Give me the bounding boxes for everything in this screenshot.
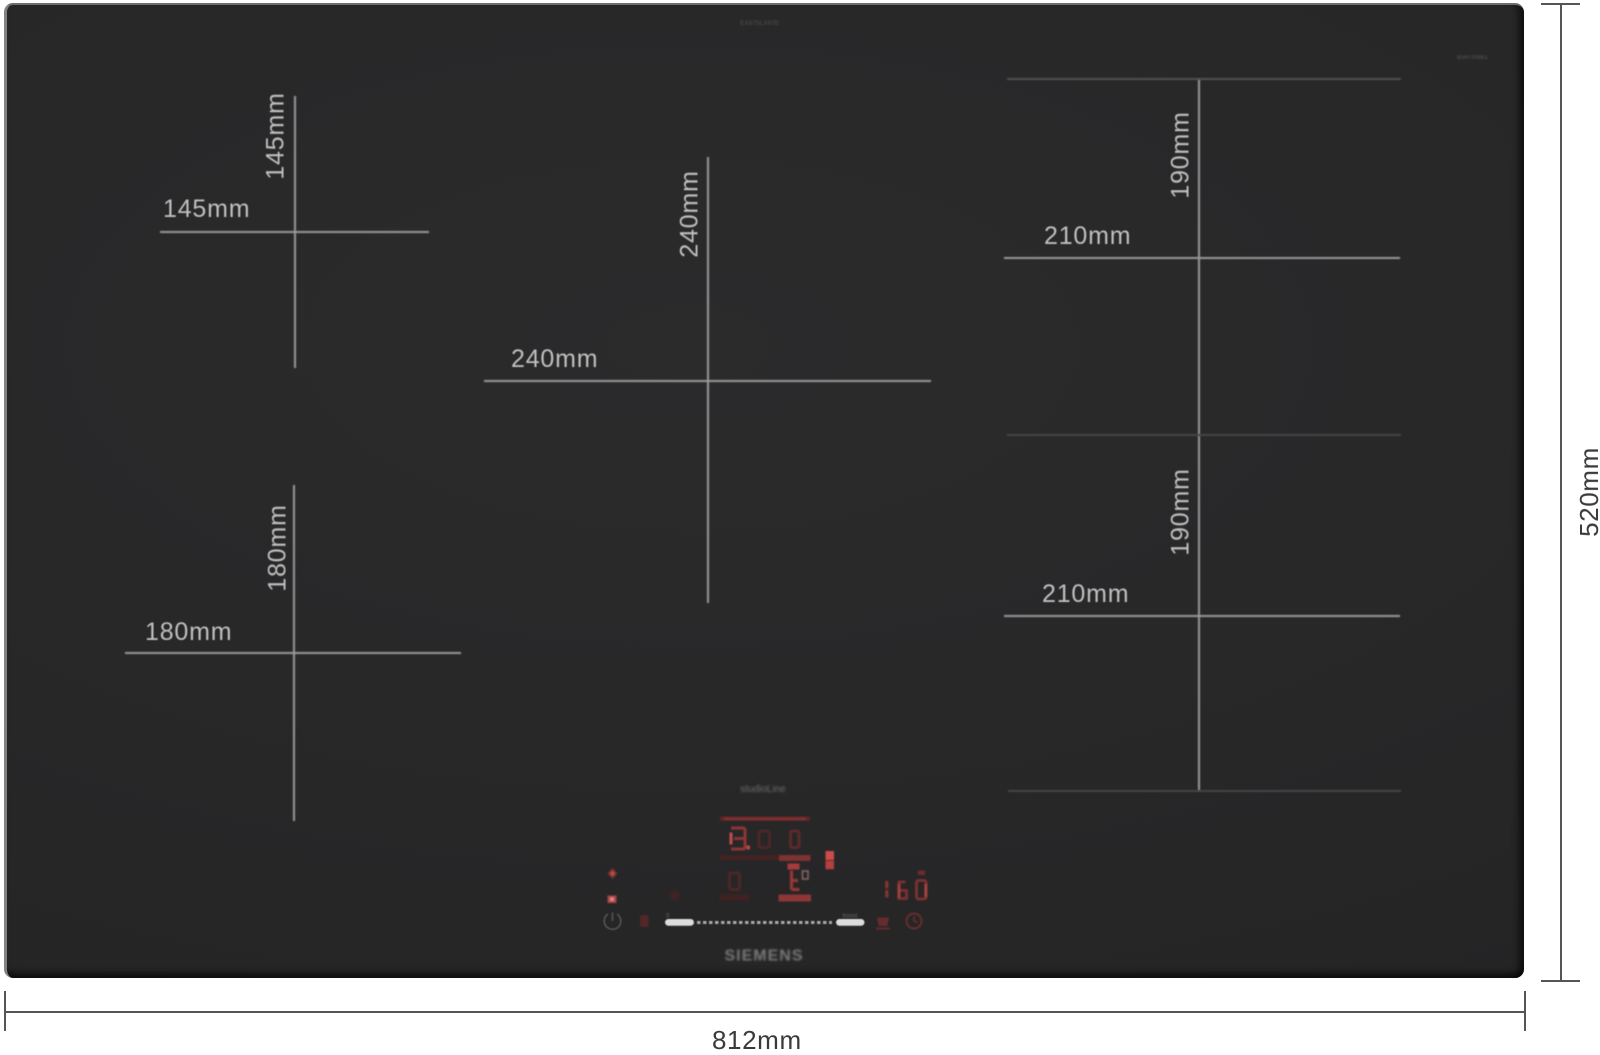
svg-text:0: 0 (666, 914, 670, 920)
svg-text:SIEMENS: SIEMENS (724, 948, 803, 965)
svg-text:boost: boost (843, 914, 858, 920)
svg-text:studioLine: studioLine (740, 784, 786, 795)
